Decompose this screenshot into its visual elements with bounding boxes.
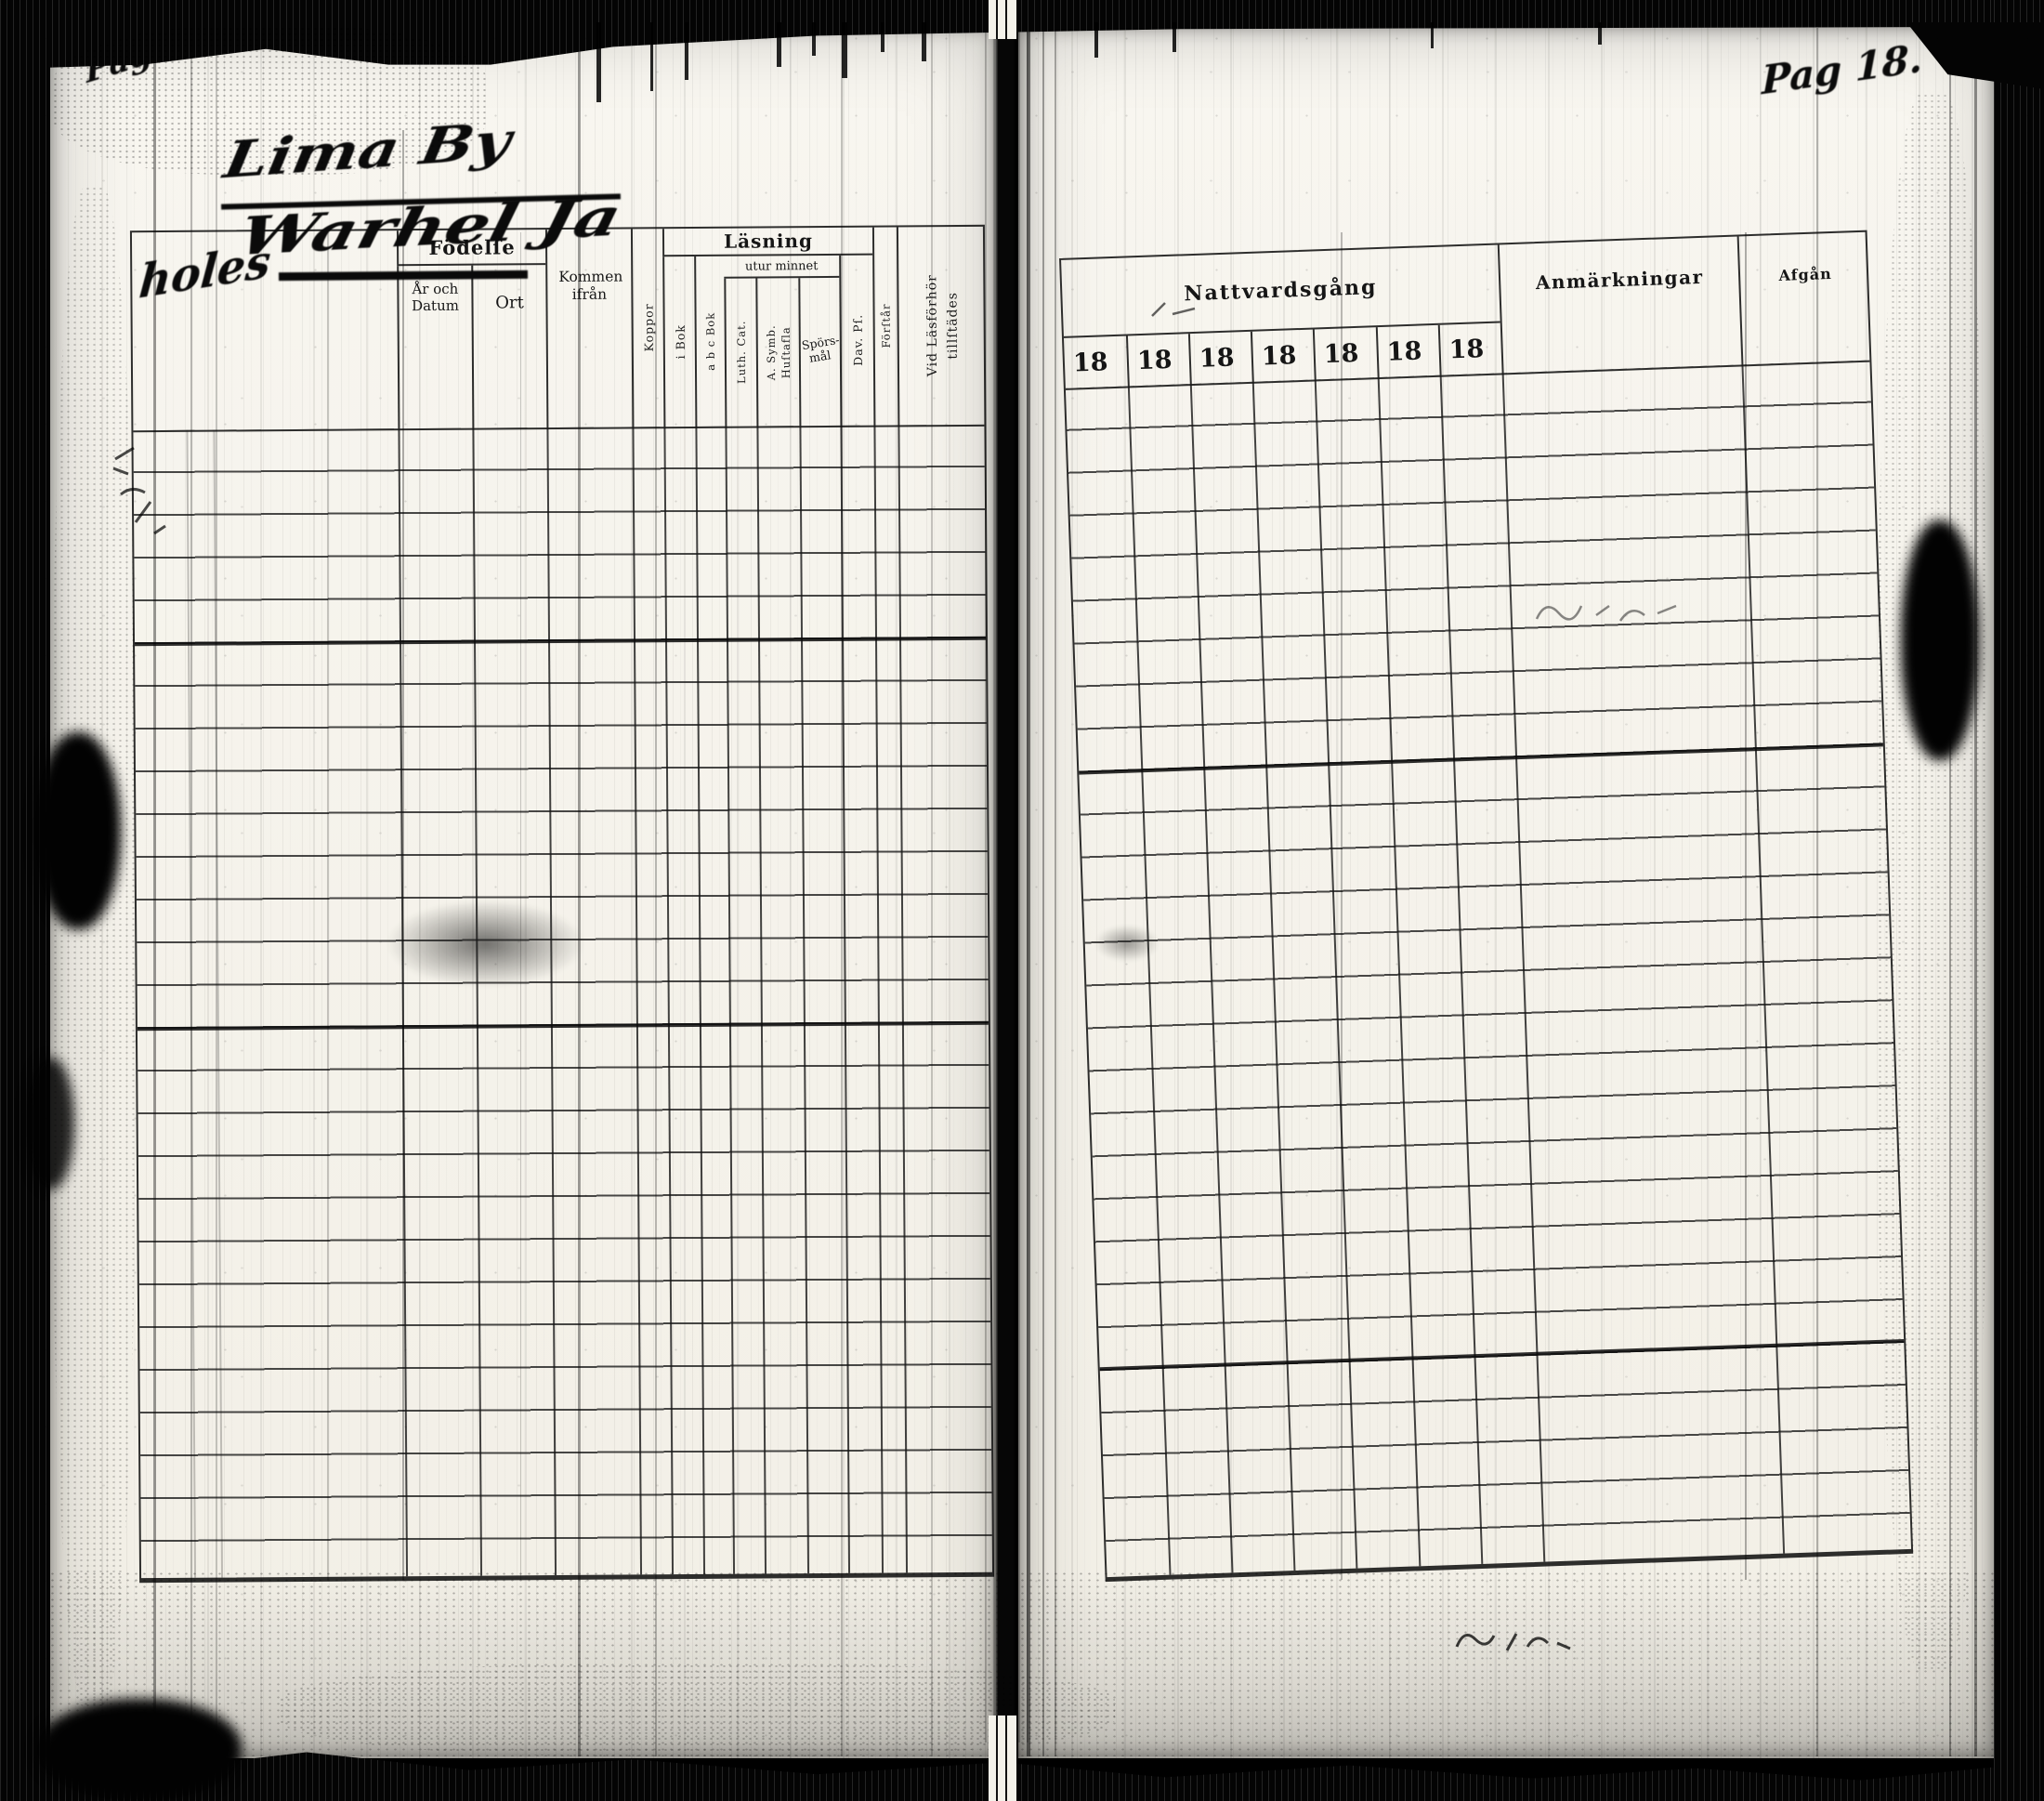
grid-row-line-strong	[138, 1021, 989, 1031]
arrived-from-label: Kommen ifrån	[558, 269, 620, 305]
communion-year-cell: 18	[1126, 334, 1190, 386]
grid-column-line	[1741, 364, 1785, 1553]
departure-label: Afgån	[1778, 265, 1832, 284]
birth-year-col-header: År och Datum	[397, 266, 472, 429]
scan-streak	[931, 28, 933, 1756]
grid-column-line	[1128, 386, 1172, 1574]
year-prefix: 18	[1190, 342, 1251, 373]
davids-psalms-col-header: Dav. Pſ.	[839, 256, 873, 426]
right-ledger-table: Nattvardsgång 18 18 18 18 18 18 18	[1059, 230, 1913, 1582]
grid-row-line-strong	[1100, 1339, 1905, 1371]
in-book-label: i Bok	[673, 324, 687, 359]
ink-scribble	[1449, 1610, 1579, 1665]
gutter-notch-bottom	[989, 1716, 1016, 1801]
edge-ink-blob	[35, 732, 121, 929]
athanasian-col-header: A. Symb. Huſtafla	[755, 278, 799, 426]
communion-year-cell: 18	[1313, 327, 1378, 379]
athanasian-label-line2: Huſtafla	[780, 326, 793, 378]
gutter-thread-line	[996, 0, 998, 39]
edge-ink-blob	[1901, 520, 1979, 760]
scan-streak	[402, 130, 404, 1580]
year-prefix: 18	[1440, 334, 1501, 364]
grid-column-line	[725, 427, 735, 1574]
ink-drip	[881, 22, 884, 52]
scan-noise-patch	[52, 26, 489, 175]
ink-drip	[842, 22, 847, 78]
scan-streak	[578, 28, 581, 1756]
ink-drip	[1094, 22, 1098, 58]
ink-scribble	[1148, 296, 1204, 323]
communion-year-cell: 18	[1188, 332, 1252, 384]
questions-label-line2: mål	[808, 348, 832, 365]
ink-drip	[1173, 22, 1176, 52]
left-ledger-table: Födelſe År och Datum Ort Kommen ifrån Ko…	[130, 225, 994, 1583]
ink-drip	[596, 22, 601, 102]
ledger-scan-spread: Födelſe År och Datum Ort Kommen ifrån Ko…	[0, 0, 2044, 1801]
gutter-thread-line	[996, 1716, 998, 1801]
grid-column-line	[663, 427, 674, 1574]
understands-col-header: Förſtår	[872, 227, 898, 425]
scan-border-right	[1994, 0, 2044, 1801]
grid-column-line	[472, 428, 482, 1576]
grid-column-line	[1315, 379, 1358, 1568]
grid-column-line	[695, 427, 705, 1574]
ink-smudge	[1094, 925, 1160, 962]
communion-label: Nattvardsgång	[1184, 275, 1378, 306]
year-prefix: 18	[1378, 335, 1439, 366]
gutter-thread-line	[1005, 0, 1007, 39]
right-table-grid	[1066, 361, 1911, 1577]
grid-column-line	[1378, 377, 1422, 1566]
davids-psalms-label: Dav. Pſ.	[850, 314, 864, 366]
scan-streak	[1055, 28, 1056, 1756]
edge-ink-blob	[26, 1058, 74, 1190]
ink-drip	[1431, 22, 1434, 48]
communion-year-cell: 18	[1251, 330, 1315, 382]
scan-streak	[327, 232, 329, 1580]
grid-column-line	[1502, 373, 1546, 1561]
grid-column-line	[898, 425, 908, 1572]
smallpox-label: Koppor	[641, 304, 655, 352]
communion-group-header: Nattvardsgång	[1061, 245, 1500, 338]
ink-scribble	[1531, 582, 1689, 647]
abc-book-col-header: a b c Bok	[694, 256, 725, 427]
scan-streak	[1745, 232, 1747, 1580]
birth-year-label: År och Datum	[405, 281, 465, 314]
athanasian-label-line1: A. Symb.	[765, 324, 778, 380]
attendance-label-line2: tillſtädes	[945, 292, 961, 360]
scan-noise-patch	[1877, 93, 1988, 1673]
gutter-notch-top	[989, 0, 1016, 39]
luther-catechism-col-header: Luth. Cat.	[724, 279, 756, 427]
book-gutter	[996, 28, 1015, 1742]
departure-col-header: Afgån	[1737, 232, 1874, 365]
grid-row-line-strong	[135, 637, 986, 646]
attendance-col-header: Vid Läsförhör tillſtädes	[897, 227, 986, 426]
reading-label: Läsning	[724, 230, 813, 253]
communion-year-cell: 18	[1376, 325, 1440, 377]
edge-ink-blob	[37, 1699, 242, 1801]
scan-streak	[1341, 232, 1343, 1580]
scan-streak	[1816, 28, 1818, 1756]
questions-col-header: Spörs- mål	[798, 278, 840, 426]
ink-drip	[650, 22, 653, 91]
grid-column-line	[1252, 382, 1296, 1571]
ink-drip	[1598, 22, 1602, 45]
grid-row-line-strong	[1079, 743, 1883, 774]
remarks-label: Anmärkningar	[1535, 266, 1703, 294]
in-book-col-header: i Bok	[662, 256, 695, 427]
understands-label: Förſtår	[880, 304, 893, 348]
ink-drip	[922, 22, 926, 61]
grid-column-line	[546, 427, 557, 1575]
ink-drip	[777, 22, 781, 67]
grid-column-line	[1190, 384, 1234, 1572]
year-prefix: 18	[1128, 345, 1189, 375]
grid-column-line	[632, 427, 642, 1574]
scan-streak	[1042, 28, 1044, 1756]
scan-border-left	[0, 0, 50, 1801]
scan-streak	[841, 28, 843, 1756]
scan-streak	[655, 28, 657, 1756]
grid-column-line	[756, 427, 766, 1574]
left-table-grid	[133, 425, 992, 1578]
ink-drip	[812, 22, 816, 56]
abc-book-label: a b c Bok	[704, 312, 717, 371]
year-prefix: 18	[1315, 338, 1377, 369]
ink-drip	[685, 22, 688, 80]
scan-streak	[520, 232, 521, 1580]
from-memory-label: utur minnet	[745, 259, 819, 274]
remarks-col-header: Anmärkningar	[1498, 237, 1742, 374]
year-prefix: 18	[1064, 347, 1127, 377]
grid-column-line	[1440, 375, 1484, 1564]
scan-noise-patch	[52, 186, 136, 1710]
arrived-from-header: Kommen ifrån	[545, 229, 632, 427]
smallpox-col-header: Koppor	[631, 229, 663, 427]
grid-column-line	[799, 426, 809, 1573]
communion-year-cell: 18	[1438, 322, 1502, 375]
communion-year-cell: 18	[1064, 336, 1128, 388]
from-memory-subheader: utur minnet	[724, 256, 839, 279]
year-prefix: 18	[1252, 340, 1314, 371]
luther-catechism-label: Luth. Cat.	[735, 321, 748, 384]
birth-place-col-header: Ort	[471, 265, 546, 428]
grid-column-line	[873, 426, 884, 1573]
ink-smudge	[386, 900, 585, 988]
gutter-thread-line	[1005, 1716, 1007, 1801]
